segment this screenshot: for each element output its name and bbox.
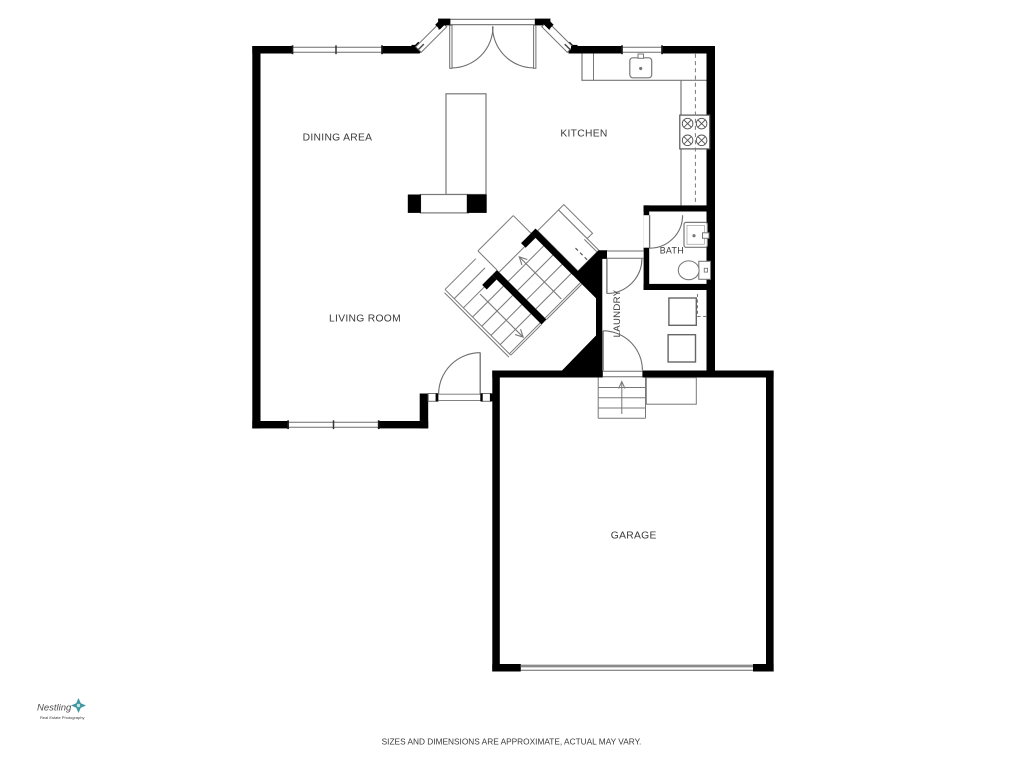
svg-text:DINING AREA: DINING AREA	[303, 132, 373, 143]
svg-text:Real Estate Photography: Real Estate Photography	[40, 715, 84, 720]
svg-text:SIZES AND DIMENSIONS ARE APPRO: SIZES AND DIMENSIONS ARE APPROXIMATE, AC…	[382, 737, 642, 747]
svg-text:KITCHEN: KITCHEN	[560, 128, 607, 139]
svg-text:LIVING ROOM: LIVING ROOM	[329, 313, 401, 324]
svg-text:Nestling: Nestling	[37, 703, 72, 714]
svg-text:GARAGE: GARAGE	[611, 531, 657, 542]
svg-text:BATH: BATH	[660, 246, 684, 256]
svg-text:LAUNDRY: LAUNDRY	[612, 289, 623, 337]
